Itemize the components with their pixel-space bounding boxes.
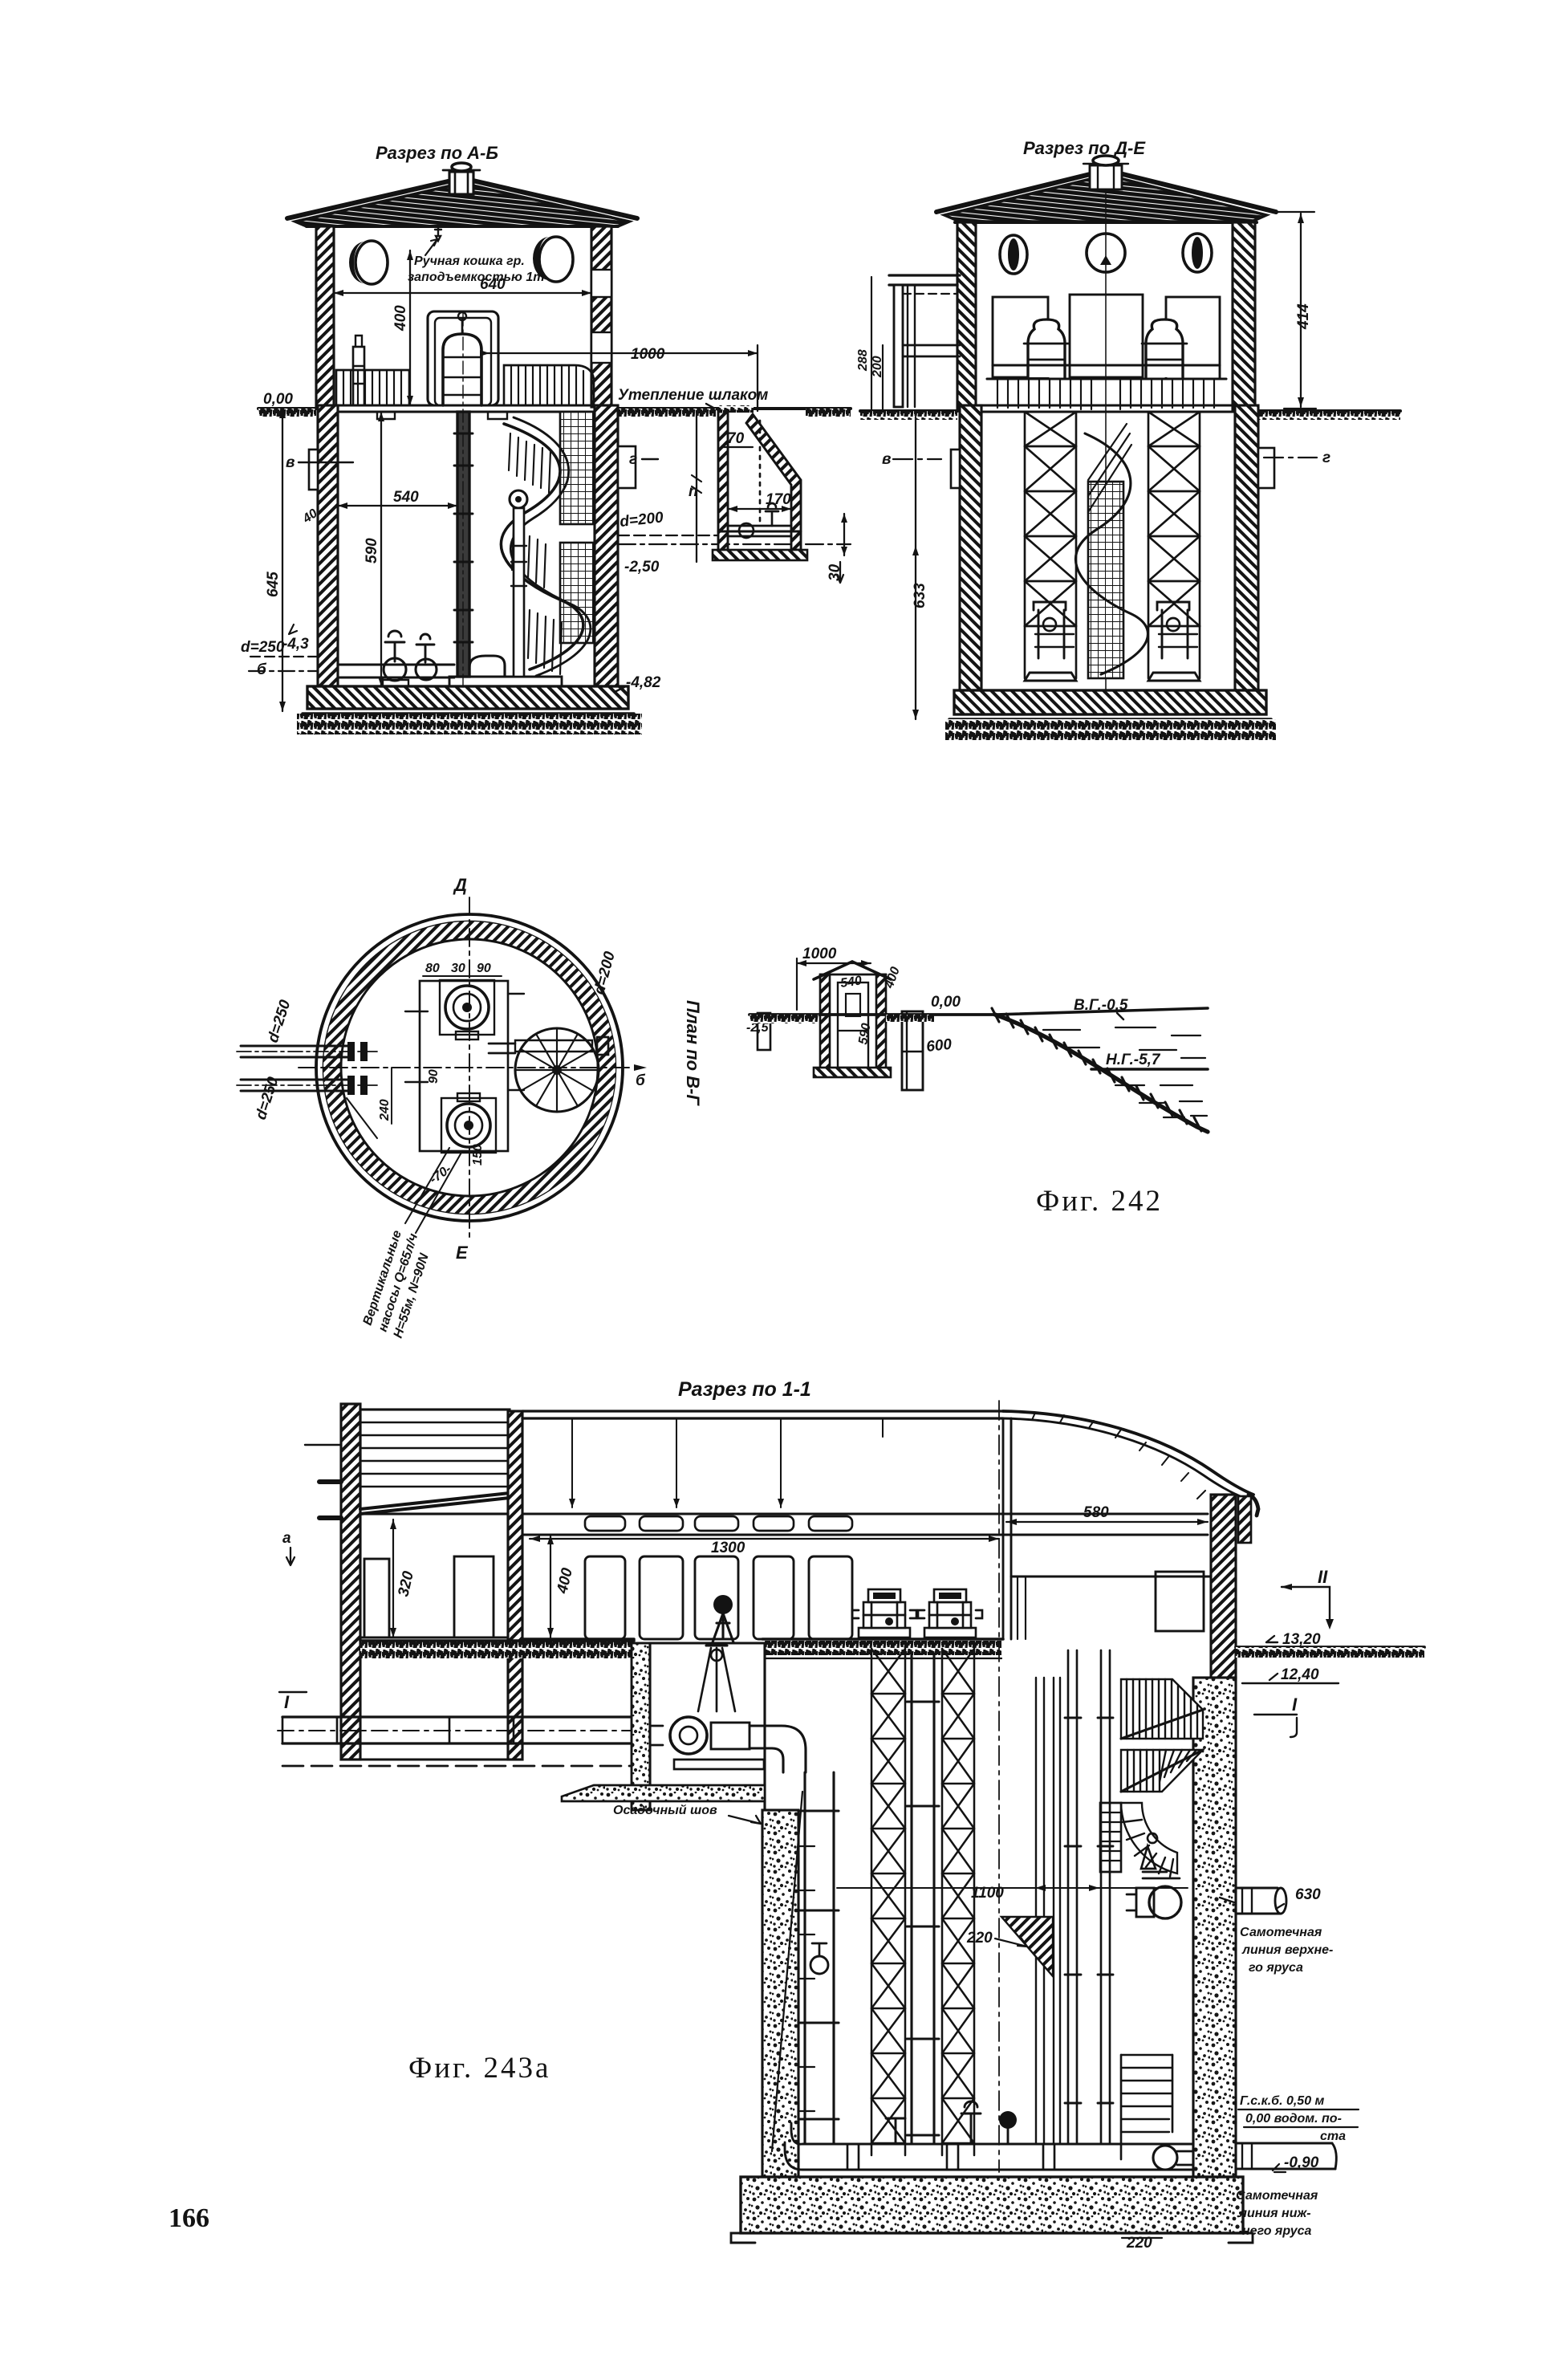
svg-text:166: 166 — [169, 2203, 209, 2233]
svg-text:I: I — [284, 1692, 290, 1712]
svg-text:линия верхне-: линия верхне- — [1241, 1943, 1333, 1957]
svg-text:590: 590 — [364, 538, 380, 563]
svg-text:го яруса: го яруса — [1249, 1961, 1303, 1975]
svg-text:645: 645 — [265, 572, 282, 597]
svg-text:220: 220 — [966, 1930, 993, 1947]
svg-text:13,20: 13,20 — [1282, 1631, 1321, 1648]
svg-text:540: 540 — [393, 489, 419, 506]
svg-text:него яруса: него яруса — [1242, 2224, 1312, 2238]
svg-text:Разрез по Д-Е: Разрез по Д-Е — [1023, 138, 1146, 158]
svg-text:150: 150 — [471, 1144, 485, 1166]
svg-text:n: n — [689, 483, 698, 500]
svg-text:170: 170 — [766, 491, 791, 508]
svg-text:в: в — [286, 454, 295, 471]
svg-text:-2,50: -2,50 — [624, 559, 660, 576]
svg-text:Д: Д — [453, 875, 467, 895]
svg-text:Ручная кошка гр.: Ручная кошка гр. — [414, 254, 525, 268]
svg-text:414: 414 — [1295, 303, 1312, 330]
svg-text:Самотечная: Самотечная — [1240, 1926, 1322, 1939]
svg-text:а: а — [282, 1530, 291, 1547]
svg-text:640: 640 — [480, 276, 506, 293]
svg-text:г: г — [629, 451, 637, 468]
svg-text:30: 30 — [451, 962, 465, 975]
svg-text:633: 633 — [912, 583, 928, 608]
svg-text:Разрез по 1-1: Разрез по 1-1 — [678, 1378, 811, 1401]
svg-text:г: г — [1322, 450, 1330, 466]
svg-text:Осадочный шов: Осадочный шов — [613, 1804, 717, 1817]
svg-text:-4,3: -4,3 — [282, 636, 309, 653]
svg-text:400: 400 — [392, 305, 409, 332]
svg-text:Фиг. 243а: Фиг. 243а — [408, 2052, 550, 2085]
svg-text:288: 288 — [856, 349, 870, 372]
svg-text:1300: 1300 — [711, 1540, 745, 1556]
svg-text:Фиг. 242: Фиг. 242 — [1036, 1185, 1163, 1218]
svg-text:ста: ста — [1320, 2130, 1346, 2143]
svg-text:I: I — [1292, 1694, 1298, 1715]
svg-text:0,00: 0,00 — [931, 994, 961, 1011]
svg-text:б: б — [257, 661, 267, 678]
svg-text:линия ниж-: линия ниж- — [1238, 2207, 1311, 2220]
svg-text:240: 240 — [378, 1099, 392, 1121]
svg-text:Утепление шлаком: Утепление шлаком — [618, 387, 768, 404]
svg-text:90: 90 — [477, 962, 491, 975]
svg-text:580: 580 — [1083, 1504, 1109, 1521]
svg-text:12,40: 12,40 — [1281, 1666, 1319, 1683]
svg-text:80: 80 — [425, 962, 440, 975]
svg-text:Г.с.к.б. 0,50 м: Г.с.к.б. 0,50 м — [1240, 2094, 1325, 2108]
svg-text:План по В-Г: План по В-Г — [683, 1000, 703, 1106]
svg-text:0,00 водом. по-: 0,00 водом. по- — [1245, 2112, 1342, 2126]
svg-text:70: 70 — [727, 430, 745, 447]
svg-text:заподъемкостью 1т: заподъемкостью 1т — [408, 271, 544, 284]
svg-text:б: б — [636, 1072, 646, 1089]
svg-text:1000: 1000 — [631, 346, 665, 363]
svg-text:200: 200 — [871, 356, 884, 378]
svg-text:1100: 1100 — [971, 1885, 1004, 1902]
svg-text:1000: 1000 — [802, 946, 837, 962]
svg-text:90: 90 — [427, 1069, 441, 1084]
svg-text:630: 630 — [1295, 1886, 1321, 1903]
svg-text:600: 600 — [925, 1036, 953, 1056]
svg-text:Е: Е — [456, 1243, 469, 1263]
svg-text:-4,82: -4,82 — [626, 674, 661, 691]
svg-text:II: II — [1318, 1567, 1328, 1587]
svg-text:Н.Г.-5,7: Н.Г.-5,7 — [1106, 1052, 1161, 1068]
svg-text:в: в — [882, 451, 891, 468]
svg-text:Самотечная: Самотечная — [1236, 2189, 1318, 2203]
svg-text:d=250: d=250 — [241, 639, 285, 656]
svg-text:В.Г.-0,5: В.Г.-0,5 — [1074, 997, 1128, 1014]
svg-text:0,00: 0,00 — [263, 391, 293, 408]
svg-text:Разрез по А-Б: Разрез по А-Б — [376, 143, 498, 163]
